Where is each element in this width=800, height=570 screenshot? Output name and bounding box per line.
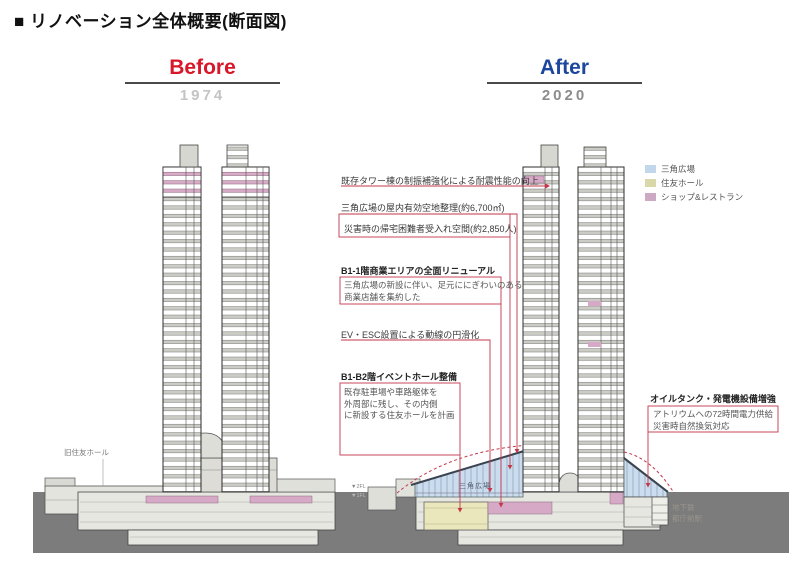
legend-label: 三角広場: [661, 163, 695, 175]
after-tower-left: [523, 167, 559, 492]
before-tower-right: [222, 167, 269, 492]
old-sumitomo-hall-label: 旧住友ホール: [64, 447, 109, 457]
level-marker-1fl: ▼1FL: [351, 493, 366, 499]
after-underline: [487, 82, 642, 84]
before-basement-lower: [128, 530, 318, 545]
annotation-commercial-title: B1-1階商業エリアの全面リニューアル: [341, 264, 495, 277]
annotation-power-title: オイルタンク・発電機設備増強: [650, 392, 776, 405]
page-title: ■ リノベーション全体概要(断面図): [14, 7, 287, 32]
after-b1-shops: [488, 502, 552, 514]
legend-label: 住友ホール: [661, 177, 704, 189]
before-tower-right-shop-floors: [222, 167, 269, 197]
legend-item-plaza: 三角広場: [645, 162, 743, 176]
subway-label-line1: 地下鉄: [672, 502, 695, 512]
after-entry-block: [368, 487, 396, 510]
after-label: After: [487, 56, 642, 80]
sumitomo-hall: [424, 502, 488, 530]
before-underline: [125, 82, 280, 84]
before-tower-right-rooftop: [227, 145, 248, 167]
before-b1-shop-strip: [146, 496, 218, 503]
after-tower-left-rooftop: [541, 145, 558, 167]
level-marker-2fl: ▼2FL: [351, 484, 366, 490]
legend-item-shop: ショップ&レストラン: [645, 190, 743, 204]
annotation-disaster: 災害時の帰宅困難者受入れ空間(約2,850人): [344, 222, 517, 235]
after-header: After 2020: [487, 56, 642, 104]
legend: 三角広場 住友ホール ショップ&レストラン: [645, 162, 743, 204]
before-right-podium: [269, 479, 335, 492]
before-tower-left-rooftop: [180, 145, 198, 167]
annotation-plaza-space: 三角広場の屋内有効空地整理(約6,700㎡): [341, 201, 505, 214]
before-header: Before 1974: [125, 56, 280, 104]
before-year: 1974: [125, 87, 280, 104]
before-building: [45, 145, 335, 545]
annotation-circulation: EV・ESC設置による動線の円滑化: [341, 328, 479, 341]
renovation-overview-diagram: 旧住友ホール 三角広場 地下鉄 都庁前駅 ▼2FL ▼1FL: [0, 0, 800, 570]
legend-item-hall: 住友ホール: [645, 176, 743, 190]
triangle-plaza-atrium: [415, 452, 523, 497]
before-tower-left: [163, 167, 201, 492]
annotation-event-hall-title: B1-B2階イベントホール整備: [341, 370, 457, 383]
legend-swatch-shop: [645, 193, 656, 201]
annotation-event-hall-desc: 既存駐車場や車路躯体を 外周部に残し、その内側 に新設する住友ホールを計画: [344, 387, 455, 422]
after-tower-right-rooftop: [584, 147, 606, 167]
annotation-seismic: 既存タワー棟の制振補強化による耐震性能の向上: [341, 174, 539, 187]
right-atrium: [624, 459, 667, 497]
subway-station-box: [652, 497, 668, 525]
before-tower-left-shop-floors: [163, 167, 201, 197]
before-label: Before: [125, 56, 280, 80]
after-tower-right-shop-strip: [588, 301, 601, 306]
after-tower-right-shop-strip: [588, 342, 601, 347]
before-b1-shop-strip: [250, 496, 312, 503]
subway-label-line2: 都庁前駅: [672, 513, 702, 523]
legend-label: ショップ&レストラン: [661, 191, 743, 203]
legend-swatch-hall: [645, 179, 656, 187]
after-basement-lower: [458, 530, 623, 545]
triangle-plaza-label: 三角広場: [459, 481, 491, 490]
annotation-power-desc: アトリウムへの72時間電力供給 災害時自然換気対応: [653, 409, 773, 432]
after-year: 2020: [487, 87, 642, 104]
annotation-commercial-desc: 三角広場の新設に伴い、足元ににぎわいのある 商業店舗を集約した: [344, 280, 523, 303]
legend-swatch-plaza: [645, 165, 656, 173]
